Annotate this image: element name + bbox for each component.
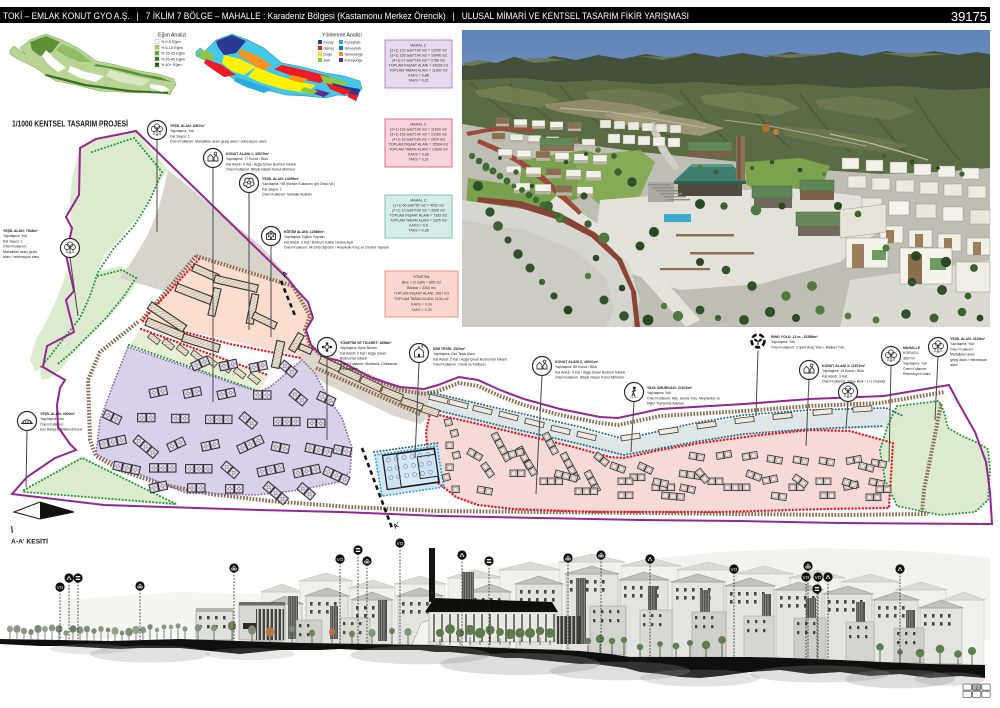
svg-text:VO: VO: [337, 557, 344, 562]
svg-text:(4+1) 16 adet*164 m2 = 2624: (4+1) 16 adet*164 m2 = 2624 m2: [392, 138, 445, 142]
svg-text:(2+1) 10 adet*100 m2 = 3008: (2+1) 10 adet*100 m2 = 3008 m2: [392, 209, 445, 213]
svg-text:TAKS = 0,31: TAKS = 0,31: [408, 158, 428, 162]
svg-text:Kuzeybatı: Kuzeybatı: [345, 41, 361, 45]
svg-text:TOPLAM TABAN ALANI = 3325 m2: TOPLAM TABAN ALANI = 3325 m2: [390, 219, 447, 223]
svg-text:Eğim Analizi: Eğim Analizi: [158, 33, 186, 39]
svg-text:(3+1) 136 adet*140 m2 = 1904: (3+1) 136 adet*140 m2 = 19040 m2: [390, 54, 447, 58]
svg-text:TOPLAM TABAN ALANI = 12609 m: TOPLAM TABAN ALANI = 12609 m2: [389, 148, 448, 152]
svg-text:(2+1) 122 adet*100 m2 = 1220: (2+1) 122 adet*100 m2 = 12200 m2: [390, 49, 447, 53]
svg-text:Güneydoğu: Güneydoğu: [345, 53, 364, 57]
svg-text:VO: VO: [815, 575, 822, 580]
svg-text:% 15-25 Eğim: % 15-25 Eğim: [161, 52, 185, 56]
svg-text:Doğu: Doğu: [324, 53, 333, 57]
svg-text:(1+1) 66 adet*62 m2 = 4092 m: (1+1) 66 adet*62 m2 = 4092 m2: [393, 204, 444, 208]
svg-text:TOPLAM İNŞAAT ALANI = 35504: TOPLAM İNŞAAT ALANI = 35504 m2: [389, 142, 449, 147]
svg-text:KAKS = 0,88: KAKS = 0,88: [408, 74, 429, 78]
svg-text:1/1000 KENTSEL TASARIM PROJESİ: 1/1000 KENTSEL TASARIM PROJESİ: [12, 119, 128, 129]
svg-text:KAKS = 0,89: KAKS = 0,89: [408, 153, 429, 157]
svg-text:39175: 39175: [951, 9, 987, 24]
svg-text:TAKS = 0,28: TAKS = 0,28: [408, 229, 428, 233]
svg-text:VO: VO: [803, 575, 810, 580]
svg-text:YÖNETİM:: YÖNETİM:: [413, 274, 430, 279]
svg-text:TOPLAM İNŞAAT ALANI: 1567 m2: TOPLAM İNŞAAT ALANI: 1567 m2: [394, 291, 450, 296]
svg-text:Güneybatı: Güneybatı: [345, 47, 362, 51]
svg-text:TOPLAM İNŞAAT ALANI = 7392 m: TOPLAM İNŞAAT ALANI = 7392 m2: [390, 213, 448, 218]
svg-text:(2+1) 116 adet*100 m2 = 1160: (2+1) 116 adet*100 m2 = 11600 m2: [390, 128, 446, 132]
svg-text:Kuzeydoğu: Kuzeydoğu: [345, 59, 363, 63]
svg-text:VO: VO: [731, 567, 738, 572]
svg-text:MAHAL 1:: MAHAL 1:: [410, 44, 426, 48]
svg-text:VO: VO: [57, 585, 64, 590]
svg-text:% 5-15 Eğim: % 5-15 Eğim: [161, 46, 183, 50]
svg-text:Yönlenme Analizi: Yönlenme Analizi: [322, 33, 362, 39]
svg-text:Batı: Batı: [324, 59, 330, 63]
svg-text:(3+1) 152 adet*140 m2 = 2128: (3+1) 152 adet*140 m2 = 21280 m2: [390, 133, 447, 137]
svg-text:KAKS = 0,6: KAKS = 0,6: [409, 224, 428, 228]
svg-text:MAHAL 3:: MAHAL 3:: [410, 199, 426, 203]
svg-text:% 40+ Eğim: % 40+ Eğim: [161, 63, 182, 67]
svg-text:Blok 1 (2 katlı) = 865 m2: Blok 1 (2 katlı) = 865 m2: [402, 281, 441, 285]
svg-text:Kuzey: Kuzey: [324, 41, 334, 45]
svg-text:Güney: Güney: [324, 47, 335, 51]
svg-text:TAKS = 0,25: TAKS = 0,25: [411, 308, 431, 312]
svg-text:Bloklar = 3300 mv: Bloklar = 3300 mv: [407, 286, 436, 290]
svg-text:TOPLAM TABAN ALANI = 11902 m: TOPLAM TABAN ALANI = 11902 m2: [389, 69, 447, 73]
svg-text:(4+1) 17 adet*164 m2 = 2788: (4+1) 17 adet*164 m2 = 2788 m2: [392, 59, 445, 63]
svg-text:% 25-40 Eğim: % 25-40 Eğim: [161, 57, 185, 61]
svg-text:TAKS = 0,31: TAKS = 0,31: [408, 79, 428, 83]
svg-text:KAKS = 0,34: KAKS = 0,34: [411, 303, 432, 307]
svg-text:A-A' KESİTİ: A-A' KESİTİ: [11, 538, 48, 546]
svg-text:% 0-5 Eğim: % 0-5 Eğim: [161, 40, 181, 44]
svg-text:TOPLAM TABAN ALANI: 1134 m2: TOPLAM TABAN ALANI: 1134 m2: [394, 297, 448, 301]
svg-text:MAHAL 2:: MAHAL 2:: [410, 123, 426, 127]
svg-text:TOKİ – EMLAK KONUT GYO A.Ş.: TOKİ – EMLAK KONUT GYO A.Ş. | 7 İKLİM 7 …: [3, 11, 689, 21]
svg-text:TOPLAM İNŞAAT ALANI = 34028: TOPLAM İNŞAAT ALANI = 34028 m2: [389, 63, 449, 68]
svg-text:VO: VO: [397, 541, 404, 546]
